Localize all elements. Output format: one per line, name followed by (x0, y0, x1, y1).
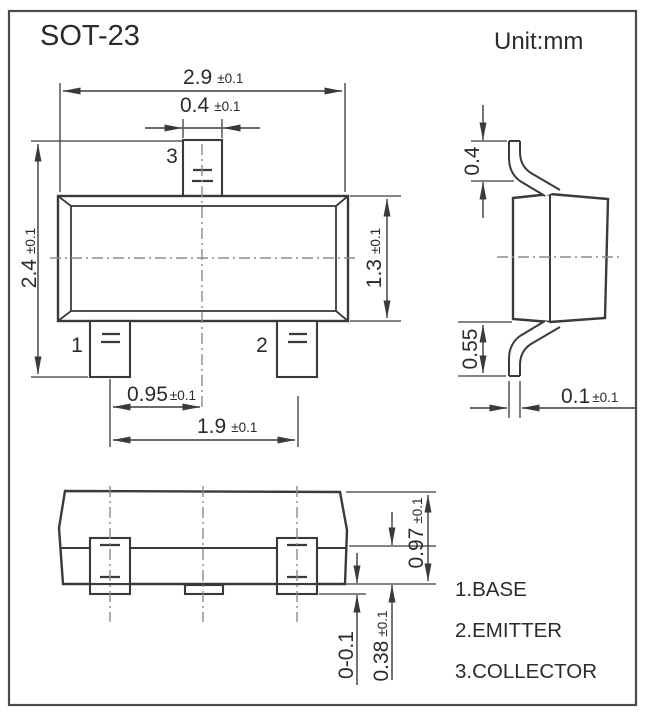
dim-body-width-text: 2.9±0.1 (183, 66, 243, 89)
legend-pin1: 1.BASE (455, 578, 527, 601)
pin-1-label: 1 (71, 334, 83, 357)
unit-label: Unit:mm (494, 28, 583, 55)
sot23-technical-drawing: SOT-23 Unit:mm 1 2 3 2.9±0.1 (0, 0, 645, 715)
top-lead-fill (509, 141, 560, 196)
dim-bottom-lead-text: 0.55 (459, 329, 482, 370)
dim-front-height-text: 0.97±0.1 (405, 497, 428, 568)
dim-lead-height-text: 0.38±0.1 (370, 610, 393, 681)
top-view: 1 2 3 2.9±0.1 0.4±0.1 2.4±0.1 1.3±0.1 0.… (18, 66, 401, 447)
bottom-lead-fill (509, 321, 560, 376)
dim-pin3-width-text: 0.4±0.1 (180, 94, 240, 117)
drawing-page: SOT-23 Unit:mm 1 2 3 2.9±0.1 (0, 0, 645, 715)
pin-3-foot (185, 585, 223, 594)
pin-2-shape (277, 321, 317, 377)
page-title: SOT-23 (40, 20, 140, 52)
dim-pin-span-text: 1.9±0.1 (197, 415, 257, 438)
legend-pin2: 2.EMITTER (455, 619, 562, 642)
pin-2-label: 2 (256, 334, 268, 357)
side-body-outline (513, 194, 608, 322)
front-view: 0.97±0.1 0.38±0.1 0-0.1 (59, 486, 436, 685)
dim-pin-pitch-text: 0.95±0.1 (127, 383, 196, 406)
legend-pin3: 3.COLLECTOR (455, 660, 597, 683)
pin-3-label: 3 (166, 145, 178, 168)
pin-1-shape (90, 321, 130, 377)
dim-body-height-text: 1.3±0.1 (363, 228, 386, 288)
dim-top-lead-text: 0.4 (461, 146, 484, 176)
dim-standoff-text: 0-0.1 (335, 631, 358, 679)
side-view: 0.4 0.55 0.1±0.1 (458, 105, 636, 418)
dim-lead-thickness-text: 0.1±0.1 (561, 385, 618, 408)
pin-legend: 1.BASE 2.EMITTER 3.COLLECTOR (455, 578, 597, 683)
